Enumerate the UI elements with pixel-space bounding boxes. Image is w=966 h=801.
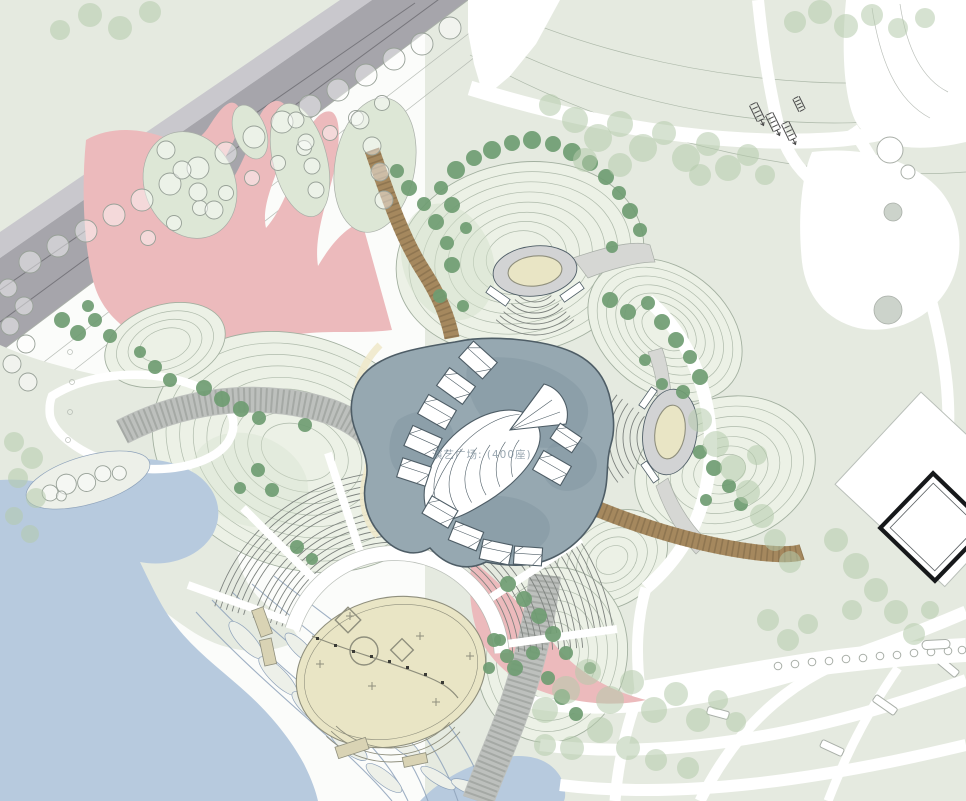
central-building-roof: 演艺广场: (400座) xyxy=(351,338,613,566)
lawn-circle xyxy=(884,203,902,221)
plaza-label: 演艺广场: (400座) xyxy=(432,448,532,461)
planter-circle xyxy=(901,165,915,179)
colonnade-slot xyxy=(922,639,950,649)
planter-circle xyxy=(877,137,903,163)
site-plan: 演艺广场: (400座) xyxy=(0,0,966,801)
lawn-circle xyxy=(874,296,902,324)
site-plan-drawing: 演艺广场: (400座) xyxy=(0,0,966,801)
